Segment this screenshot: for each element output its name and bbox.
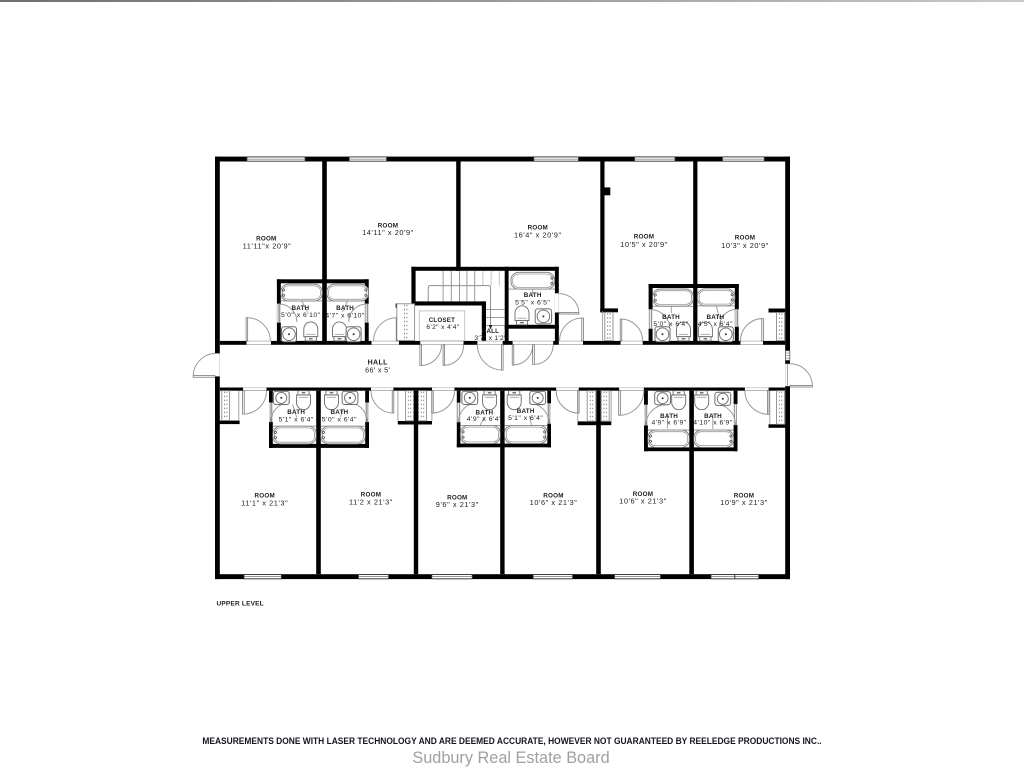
svg-text:4'10" x 6'9": 4'10" x 6'9" (693, 420, 733, 427)
svg-text:66' x 5': 66' x 5' (365, 365, 390, 374)
svg-text:5'0" x 6'10": 5'0" x 6'10" (281, 312, 321, 319)
svg-text:4'7" x 6'10": 4'7" x 6'10" (325, 313, 365, 320)
svg-text:14'11" x 20'9": 14'11" x 20'9" (362, 228, 414, 237)
svg-text:5'5" x 6'5": 5'5" x 6'5" (515, 300, 550, 307)
svg-text:UPPER LEVEL: UPPER LEVEL (217, 600, 264, 607)
svg-text:10'6" x 21'3": 10'6" x 21'3" (530, 498, 578, 507)
svg-text:10'5" x 20'9": 10'5" x 20'9" (620, 240, 668, 249)
svg-text:5'1" x 6'4": 5'1" x 6'4" (279, 417, 314, 424)
svg-text:BATH: BATH (287, 409, 305, 416)
svg-text:4'9" x 6'4": 4'9" x 6'4" (467, 416, 502, 423)
svg-text:11'2 x 21'3": 11'2 x 21'3" (349, 498, 393, 507)
svg-text:4'9" x 6'9": 4'9" x 6'9" (651, 420, 686, 427)
svg-text:BATH: BATH (291, 305, 309, 312)
svg-text:4'5" x 6'4": 4'5" x 6'4" (698, 321, 733, 328)
svg-text:10'9" x 21'3": 10'9" x 21'3" (720, 498, 768, 507)
svg-text:16'4" x 20'9": 16'4" x 20'9" (514, 231, 562, 240)
svg-text:9'6" x 21'3": 9'6" x 21'3" (436, 500, 479, 509)
svg-text:BATH: BATH (330, 409, 348, 416)
svg-text:11'1" x 21'3": 11'1" x 21'3" (241, 498, 288, 507)
svg-text:5'0" x 6'4": 5'0" x 6'4" (653, 321, 688, 328)
svg-text:BATH: BATH (336, 305, 354, 312)
svg-text:HALL: HALL (482, 328, 499, 335)
svg-text:10'3" x 20'9": 10'3" x 20'9" (721, 241, 769, 250)
svg-text:3'7" x 1'2": 3'7" x 1'2" (474, 335, 506, 342)
svg-text:11'11"x 20'9": 11'11"x 20'9" (243, 241, 292, 250)
svg-text:5'0" x 6'4": 5'0" x 6'4" (322, 417, 357, 424)
svg-text:BATH: BATH (524, 292, 542, 299)
svg-text:6'2" x 4'4": 6'2" x 4'4" (426, 324, 459, 331)
svg-text:10'6" x 21'3": 10'6" x 21'3" (619, 497, 667, 506)
svg-text:5'1" x 6'4": 5'1" x 6'4" (508, 415, 543, 422)
